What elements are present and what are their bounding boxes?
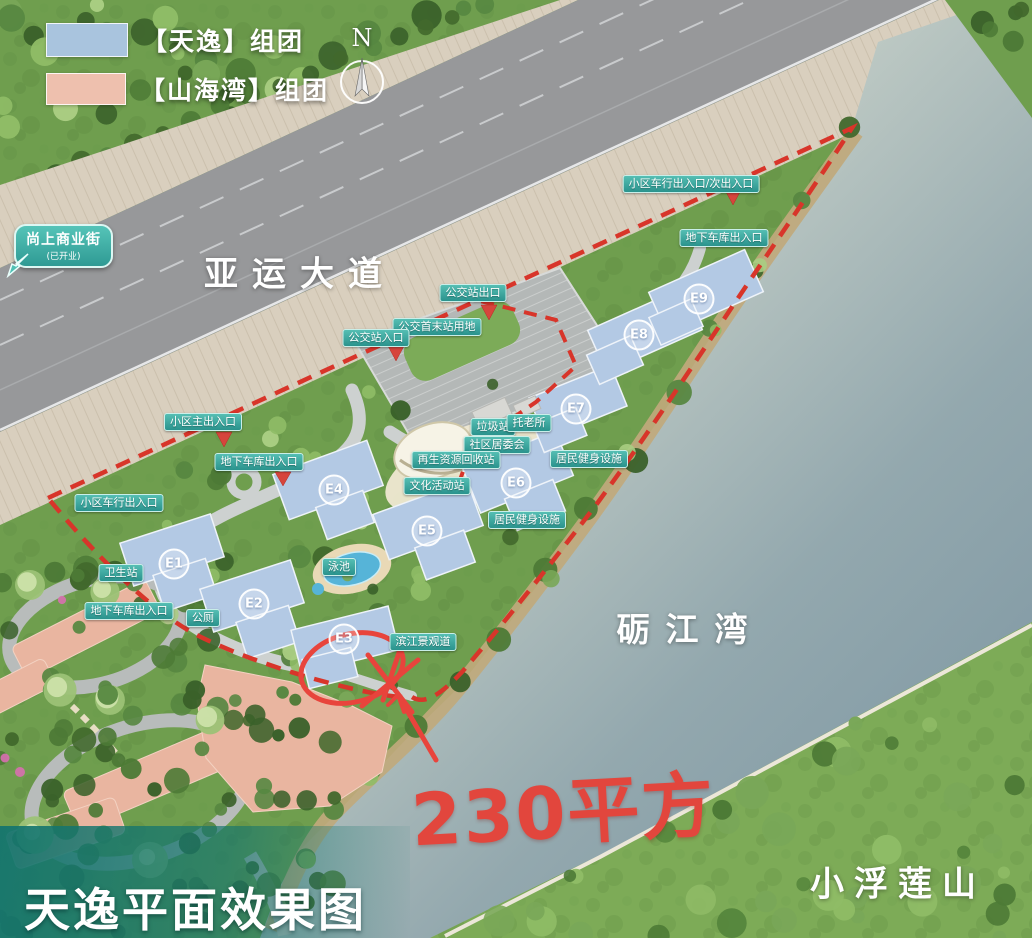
area-annotation-text: 230平方 (408, 746, 717, 867)
building-marker-e2: E2 (239, 589, 270, 620)
legend-label-tianyi: 【天逸】组团 (142, 22, 304, 58)
road-name-label: 亚运大道 (204, 247, 396, 296)
legend: 【天逸】组团 【山海湾】组团 (46, 22, 329, 120)
roundabout-island (239, 477, 249, 487)
kids-pool (312, 583, 324, 595)
pool-label: 泳池 (322, 558, 356, 576)
recycling-station-label: 再生资源回收站 (412, 451, 501, 469)
public-toilet-label: 公厕 (186, 609, 220, 627)
garage-entrance-ne-label: 地下车库出入口 (680, 229, 769, 247)
bus-station-entrance-label: 公交站入口 (343, 329, 410, 347)
legend-label-shanhaiwan: 【山海湾】组团 (140, 71, 329, 107)
building-marker-e8: E8 (624, 320, 655, 351)
fitness-facility-e-label: 居民健身设施 (550, 450, 628, 468)
building-marker-e3: E3 (329, 624, 360, 655)
shop-street-arrow-icon (6, 252, 34, 278)
bus-station-exit-label: 公交站出口 (440, 284, 507, 302)
fitness-facility-s-label: 居民健身设施 (488, 511, 566, 529)
building-marker-e1: E1 (159, 549, 190, 580)
compass-north-label: N (336, 26, 388, 50)
cultural-activity-label: 文化活动站 (404, 477, 471, 495)
garage-entrance-mid-label: 地下车库出入口 (215, 453, 304, 471)
mountain-name-label: 小浮莲山 (810, 857, 986, 906)
site-plan-map: 【天逸】组团 【山海湾】组团 N 尚上商业街 (已开业) 亚运大道 砺江湾 小浮… (0, 0, 1032, 938)
river-name-label: 砺江湾 (617, 603, 764, 651)
vehicle-entrance-w-label: 小区车行出入口 (75, 494, 164, 512)
building-marker-e7: E7 (561, 394, 592, 425)
legend-swatch-shanhaiwan (46, 73, 126, 105)
compass-rose-icon (336, 50, 388, 106)
legend-row-shanhaiwan: 【山海湾】组团 (46, 71, 329, 107)
legend-row-tianyi: 【天逸】组团 (46, 22, 329, 58)
compass: N (336, 26, 388, 110)
building-marker-e4: E4 (319, 475, 350, 506)
building-marker-e9: E9 (684, 284, 715, 315)
garage-entrance-sw-label: 地下车库出入口 (85, 602, 174, 620)
building-marker-e5: E5 (412, 516, 443, 547)
page-title: 天逸平面效果图 (24, 874, 367, 938)
health-station-label: 卫生站 (99, 564, 144, 582)
legend-swatch-tianyi (46, 23, 128, 57)
shop-street-title: 尚上商业街 (26, 229, 101, 249)
vehicle-secondary-entrance-label: 小区车行出入口/次出入口 (623, 175, 760, 193)
building-marker-e6: E6 (501, 468, 532, 499)
riverside-walkway-label: 滨江景观道 (390, 633, 457, 651)
shop-street-subtitle: (已开业) (26, 249, 101, 262)
elderly-care-label: 托老所 (507, 414, 552, 432)
main-entrance-label: 小区主出入口 (164, 413, 242, 431)
